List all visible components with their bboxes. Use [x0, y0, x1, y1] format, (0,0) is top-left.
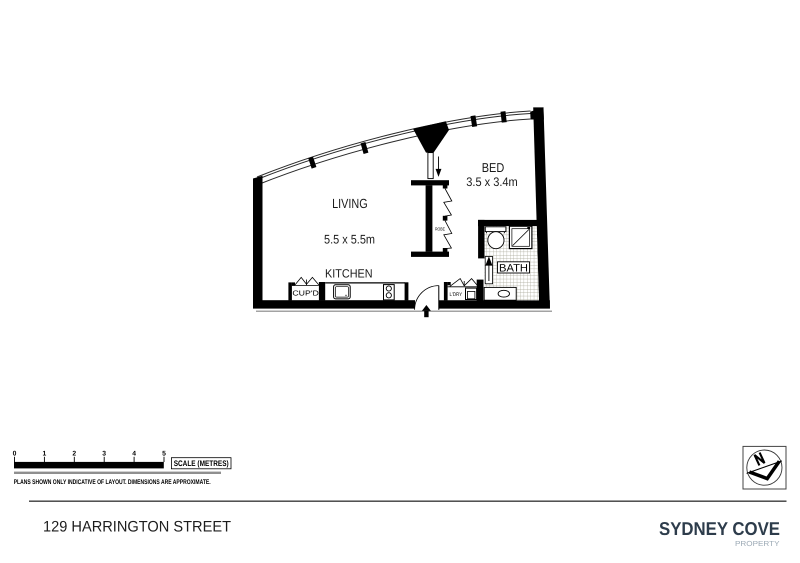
- svg-text:ROBE: ROBE: [435, 226, 445, 231]
- svg-text:2: 2: [72, 451, 76, 458]
- svg-text:PROPERTY: PROPERTY: [735, 539, 780, 548]
- svg-text:5.5 x 5.5m: 5.5 x 5.5m: [324, 232, 375, 246]
- svg-text:BATH: BATH: [499, 262, 528, 274]
- svg-text:KITCHEN: KITCHEN: [325, 266, 373, 280]
- svg-text:4: 4: [132, 451, 136, 458]
- svg-text:3.5 x 3.4m: 3.5 x 3.4m: [466, 175, 518, 189]
- svg-text:SCALE (METRES): SCALE (METRES): [174, 459, 229, 468]
- svg-text:CUP'D: CUP'D: [292, 289, 319, 298]
- svg-text:3: 3: [102, 451, 106, 458]
- svg-text:0: 0: [13, 451, 17, 458]
- svg-text:L'DRY: L'DRY: [450, 292, 463, 298]
- svg-text:LIVING: LIVING: [332, 196, 368, 211]
- svg-text:SYDNEY COVE: SYDNEY COVE: [659, 518, 780, 539]
- svg-text:129 HARRINGTON STREET: 129 HARRINGTON STREET: [43, 519, 231, 536]
- svg-text:BED: BED: [482, 160, 505, 175]
- svg-text:PLANS SHOWN ONLY INDICATIVE OF: PLANS SHOWN ONLY INDICATIVE OF LAYOUT. D…: [14, 479, 211, 486]
- svg-text:5: 5: [162, 451, 166, 458]
- svg-text:1: 1: [43, 451, 47, 458]
